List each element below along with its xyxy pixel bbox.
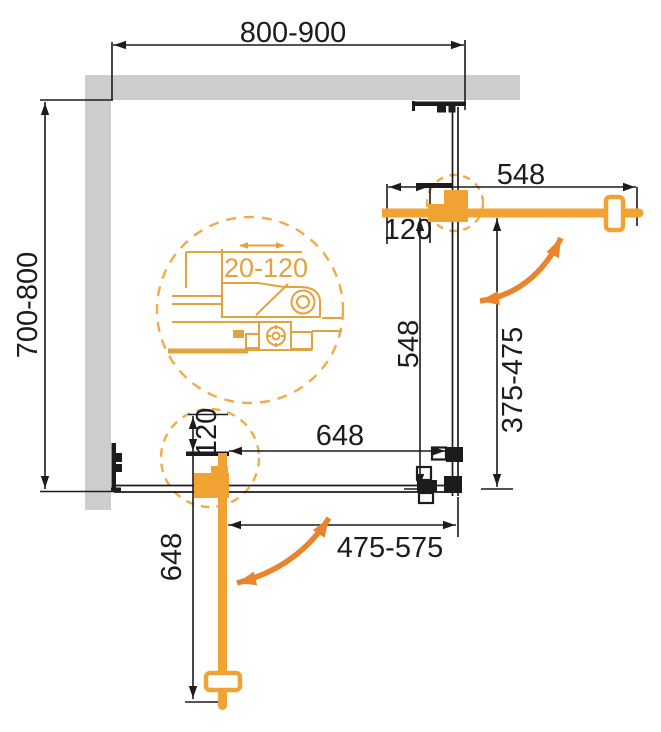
dimension-right-side-height: 548 [393,218,433,489]
swing-arrow-top [479,235,567,308]
detail-adjust-range-label: 20-120 [224,253,308,283]
dim-label-bottom-door-adjust: 120 [191,408,223,456]
dim-label-right-side-height: 548 [393,320,425,368]
dim-label-right-opening: 375-475 [497,327,529,433]
adjust-range-arrow [239,242,285,248]
door-top-hinge-block [444,190,468,222]
dim-label-top-door-width: 548 [497,159,545,191]
top-wall [85,75,520,100]
dimension-right-opening: 375-475 [481,218,529,489]
corner-brackets [417,447,463,503]
profile-mechanism-drawing [168,283,342,351]
dim-label-depth-total: 700-800 [12,252,44,358]
dim-label-width-total: 800-900 [240,17,346,49]
dimension-top-door: 548 120 [384,159,637,246]
dim-label-top-door-adjust: 120 [384,214,432,246]
door-top-bar [382,209,640,218]
door-top-handle [606,197,623,230]
dimension-bottom-opening: 475-575 [228,497,458,564]
door-bottom-handle [206,673,240,690]
door-top-end-cap [417,183,453,188]
enclosure-installation-diagram: 800-900 700-800 548 120 548 375-475 648 [0,0,661,732]
glass-panel-right [453,107,459,496]
door-bottom-hinge-block [194,473,229,498]
dimension-bottom-door-width: 648 [229,420,446,455]
detail-circle: 20-120 [157,217,343,403]
dim-label-bottom-door-length: 648 [156,533,188,581]
left-wall [85,75,111,510]
dim-label-bottom-door-width: 648 [316,420,364,452]
dim-label-bottom-opening: 475-575 [337,532,443,564]
door-bottom [186,452,240,711]
diagram-canvas: 800-900 700-800 548 120 548 375-475 648 [0,0,661,732]
